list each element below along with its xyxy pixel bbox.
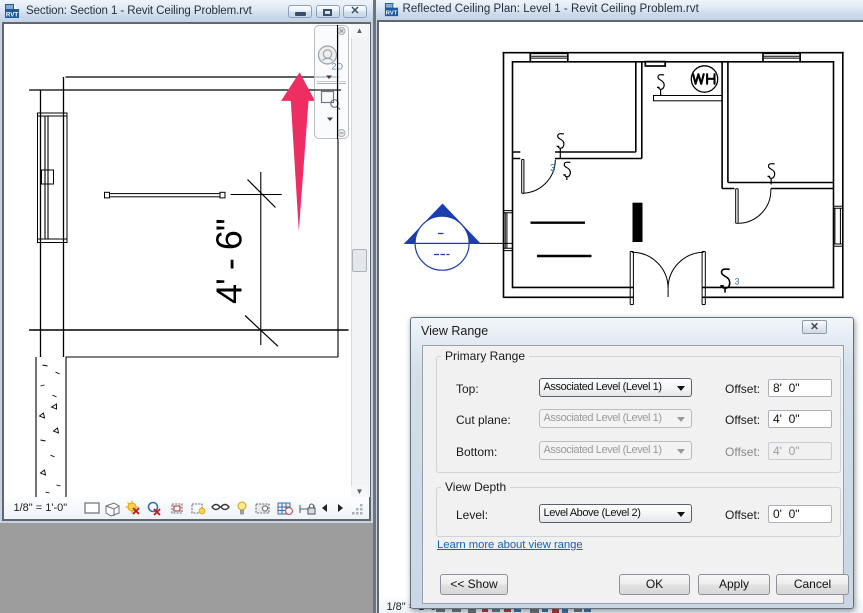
svg-text:RVT: RVT (6, 12, 18, 19)
svg-text:3: 3 (734, 277, 739, 287)
svg-text:4' - 6": 4' - 6" (208, 219, 249, 304)
svg-text:3: 3 (550, 163, 556, 174)
svg-text:RVT: RVT (385, 11, 397, 17)
